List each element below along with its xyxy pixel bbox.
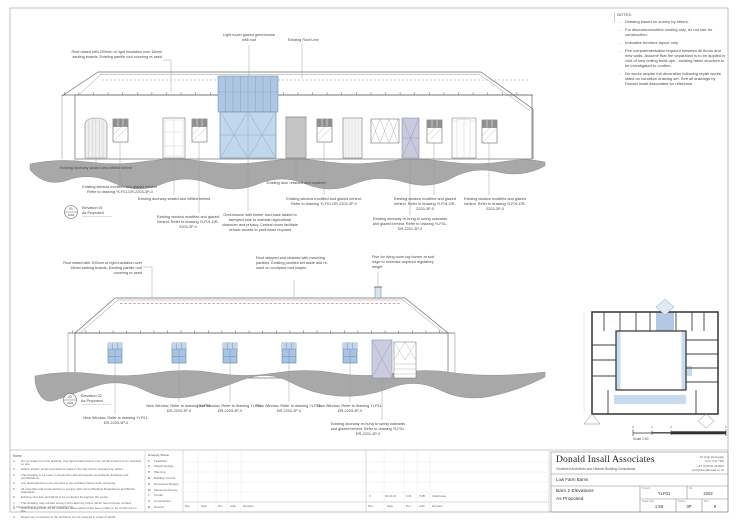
status-field-label: Status <box>678 500 685 503</box>
el2-doorway <box>372 340 416 378</box>
el2-annotation: New Window. Refer to drawing YLF01-DR-22… <box>80 416 152 426</box>
status-label: Developed Design <box>154 483 179 487</box>
notes-panel: NOTES: Drawing based on survey by others… <box>617 12 727 89</box>
scale-field-value: 1:50 <box>644 504 674 509</box>
general-notes: Notes: Do not scale from this drawing. U… <box>13 454 141 520</box>
revision-field-label: Rev <box>704 500 709 503</box>
status-label: Building Control <box>154 477 175 481</box>
el2-reroof-label: Roof stripped and relaided with matching… <box>256 256 332 271</box>
el1-annotation: Existing door retained and repaired <box>258 181 334 186</box>
note-item: For discussion/outline costing only, do … <box>625 27 727 37</box>
el1-greenhouse-label: Light touch glazed greenhouse infill roo… <box>220 33 278 43</box>
el2-annotation: Existing doorway re-hung to swing outwar… <box>330 422 406 437</box>
general-note-item: Report any omissions to the architect; d… <box>21 516 141 520</box>
scale-label: Scale 1:50 <box>633 437 649 441</box>
number-field-value: 2202 <box>691 491 725 496</box>
el1-annotation: Greenhouse with timber clad base added t… <box>222 213 298 233</box>
rev-col-header: Date <box>387 504 393 508</box>
scale-tick: 1 <box>648 425 656 429</box>
general-note-item: This drawing to be read in conjunction w… <box>21 474 141 482</box>
note-item: Fire compartmentation required between a… <box>625 48 727 69</box>
project-name: Low Farm Barns <box>556 477 588 482</box>
rev-entry-cell: TOB <box>419 494 425 498</box>
notes-title: NOTES: <box>617 12 727 17</box>
rev-col-header: Auth <box>419 504 425 508</box>
el1-annotation: Existing window modified and glazed behi… <box>462 197 528 212</box>
el1-marker-sheet: 2202 <box>65 213 78 217</box>
note-item: No works require full decoration followi… <box>625 71 727 87</box>
general-note-item: Existing structure and fabric to be prot… <box>21 496 141 500</box>
greenhouse-glazing <box>218 76 278 158</box>
scale-tick: 2 <box>667 425 675 429</box>
el1-annotation: Existing window modified and glazed behi… <box>390 197 460 212</box>
rev-entry-cell: 02.10.23 <box>385 494 396 498</box>
address-line: york@donaldinsall.co.uk <box>640 468 724 472</box>
elevation-02-linework <box>35 267 545 420</box>
general-notes-title: Notes: <box>13 454 141 458</box>
el2-marker-subtitle: As Proposed <box>81 399 103 404</box>
firm-subtitle: Chartered Architects and Historic Buildi… <box>556 467 635 471</box>
key-plan <box>584 299 718 428</box>
copyright-line: © 2023 DONALD INSALL ASSOCIATES LTD <box>13 505 73 509</box>
general-note-item: Where shown, levels and datums relate to… <box>21 468 141 472</box>
status-field-value: 3P <box>678 504 700 509</box>
rev-entry-cell: CJS <box>406 494 411 498</box>
firm-address: 10 High Petergate York YO1 7EN +44 (0)19… <box>640 455 724 472</box>
rev-col-header: Drn <box>406 504 411 508</box>
project-field-value: YLF01 <box>644 491 684 496</box>
el1-marker-number: 01 <box>65 207 78 211</box>
el1-annotation: Existing doorway sealed and infilled beh… <box>136 197 212 202</box>
rev-col-header: Revision <box>432 504 443 508</box>
el1-annotation: Existing doorway re-hung to swing outwar… <box>371 217 449 232</box>
el1-roofline-label: Existing Roof Line <box>288 38 334 43</box>
drawing-title-line2: As Proposed <box>556 497 583 502</box>
el2-annotation: New Window. Refer to drawing YLF01-DR-22… <box>314 404 386 414</box>
scale-field-label: Scale (A1) <box>642 500 654 503</box>
el1-marker-subtitle: As Proposed <box>82 211 104 216</box>
rev-col-header: Date <box>201 504 207 508</box>
rev-col-header: Revision <box>243 504 254 508</box>
number-field-label: No. <box>689 487 693 490</box>
scale-tick: 5 <box>722 425 730 429</box>
general-note-item: Do not scale from this drawing. Use figu… <box>21 460 141 468</box>
general-note-item: Any discrepancies to be reported to the … <box>21 482 141 486</box>
el1-annotation: Existing window modified and glazed behi… <box>82 185 158 195</box>
status-label: Feasibility <box>154 460 167 464</box>
el2-marker-sheet: 2202 <box>64 401 77 405</box>
drawing-status-legend: Drawing Status FFeasibility SSketch Desi… <box>148 454 182 512</box>
note-item: Indicative furniture layout only. <box>625 40 727 45</box>
el1-annotation: Existing doorway sealed and infilled beh… <box>58 166 134 171</box>
el1-annotation: Existing window modified and glazed behi… <box>286 197 362 207</box>
rev-entry-cell: 0 <box>369 494 371 498</box>
drawing-sheet: NOTES: Drawing based on survey by others… <box>0 0 736 520</box>
general-note-item: All materials and workmanship to comply … <box>21 488 141 496</box>
rev-col-header: Rev <box>185 504 190 508</box>
rev-col-header: Rev <box>368 504 373 508</box>
rev-col-header: Auth <box>230 504 236 508</box>
el2-roof-label: Roof raised with 200mm of rigid insulati… <box>58 261 142 276</box>
rev-entry-cell: Initial Issue <box>432 494 446 498</box>
drawing-title-line1: Barn 2 Elevations <box>556 489 594 494</box>
el2-flue-label: Flue for living room log burner at roof … <box>372 255 442 270</box>
status-label: Measured Survey <box>154 489 178 493</box>
el2-marker-number: 02 <box>64 395 77 399</box>
status-label: Record <box>154 506 164 510</box>
status-label: Construction <box>154 500 171 504</box>
drawing-status-title: Drawing Status <box>148 454 182 458</box>
rev-col-header: Drn <box>218 504 223 508</box>
scale-bar <box>633 430 726 437</box>
flue <box>374 287 382 298</box>
status-label: Sketch Design <box>154 465 173 469</box>
el1-roof-label: Roof raised with 200mm of rigid insulati… <box>70 50 162 60</box>
scale-tick: 0 <box>629 425 637 429</box>
note-item: Drawing based on survey by others. <box>625 19 727 24</box>
el1-annotation: Existing window modified and glazed behi… <box>155 215 221 230</box>
status-label: Tender <box>154 494 163 498</box>
revision-field-value: 0 <box>704 504 726 509</box>
project-field-label: Project <box>642 487 650 490</box>
status-label: Planning <box>154 471 166 475</box>
